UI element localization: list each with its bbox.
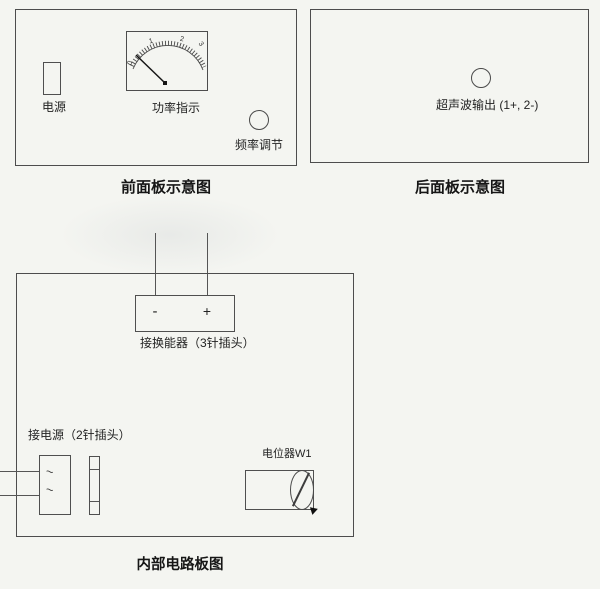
power-connector-label: 接电源（2针插头）: [28, 428, 131, 442]
power-switch-rect: [43, 62, 61, 95]
meter-scale-2: 2: [179, 36, 185, 44]
potentiometer-label: 电位器W1: [262, 447, 312, 461]
rear-panel-caption: 后面板示意图: [412, 179, 508, 197]
scan-smudge: [60, 195, 280, 275]
meter-needle: [136, 55, 165, 83]
power-wire-top: [0, 471, 40, 472]
transducer-connector-label: 接换能器（3针插头）: [140, 336, 232, 350]
meter-needle-pivot: [163, 81, 167, 85]
front-panel-caption: 前面板示意图: [118, 179, 214, 197]
meter-scale-3: 3: [197, 41, 205, 48]
ultrasonic-output-label: 超声波输出 (1+, 2-): [436, 98, 538, 112]
rear-panel-box: 超声波输出 (1+, 2-): [310, 9, 589, 163]
circuit-board-caption: 内部电路板图: [130, 556, 230, 574]
frequency-knob-label: 频率调节: [232, 138, 286, 152]
meter-scale-0: 0: [126, 60, 134, 67]
front-panel-box: 电源 0 1 2 3 功率指示 频率调节: [15, 9, 297, 166]
scanned-diagram-page: 电源 0 1 2 3 功率指示 频率调节 前面板示意图 超声波输出 (1+, 2…: [0, 0, 600, 589]
fuse-divider-top: [90, 469, 99, 470]
transducer-pin-minus: -: [147, 305, 163, 319]
fuse-divider-bottom: [90, 501, 99, 502]
power-meter-label: 功率指示: [136, 101, 216, 115]
ultrasonic-output-circle: [471, 68, 491, 88]
power-meter: 0 1 2 3: [126, 31, 208, 91]
transducer-pin-plus: +: [199, 304, 215, 318]
power-switch-label: 电源: [42, 100, 66, 114]
meter-scale-1: 1: [148, 38, 154, 46]
power-wire-bottom: [0, 495, 40, 496]
frequency-knob-circle: [249, 110, 269, 130]
fuse-holder-rect: [89, 456, 100, 515]
